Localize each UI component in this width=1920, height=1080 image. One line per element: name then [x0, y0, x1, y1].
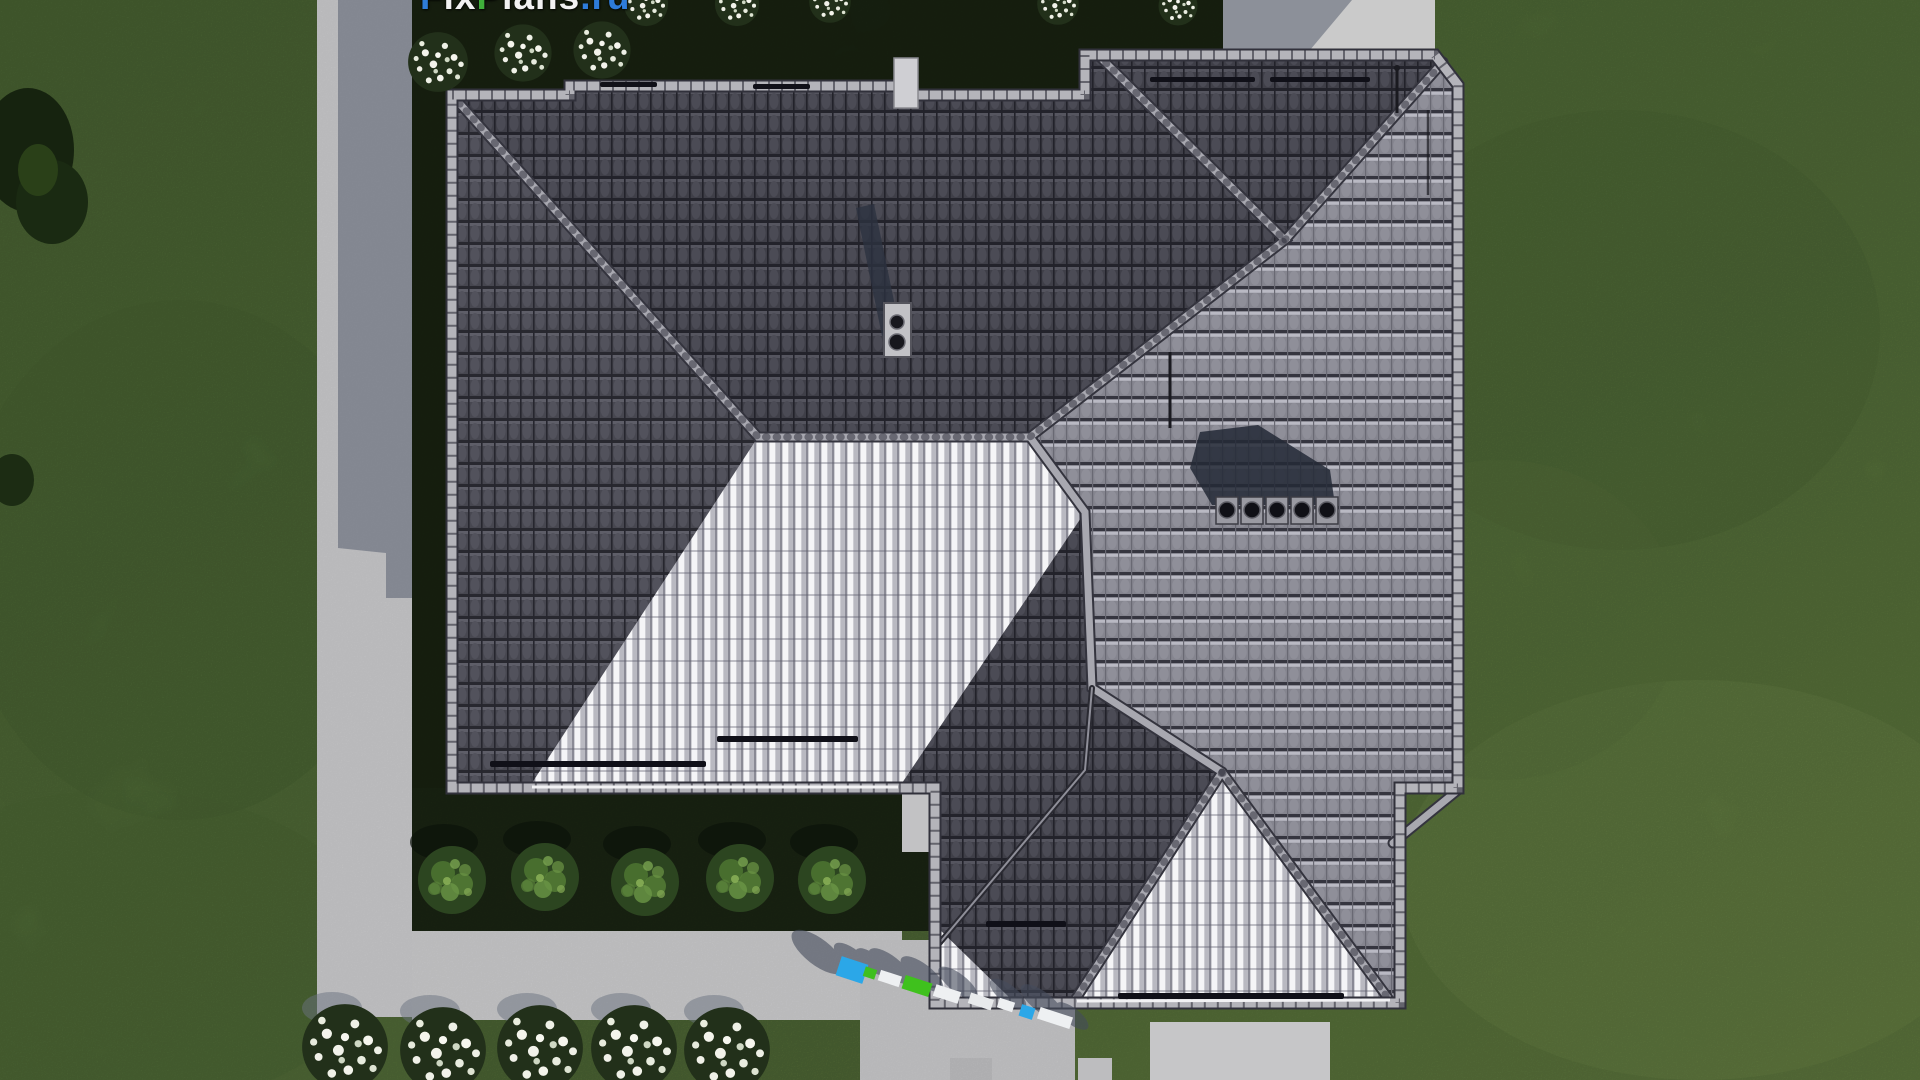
hedge-bush: [418, 846, 486, 914]
roof-vent: [1291, 497, 1313, 524]
roof-vent: [1216, 497, 1238, 524]
hedge-bush: [611, 848, 679, 916]
roof-vent: [1241, 497, 1263, 524]
flower-cluster: [494, 24, 551, 81]
roof-vent: [1316, 497, 1338, 524]
entrance-pad-right: [1150, 1022, 1330, 1080]
flower-cluster: [573, 21, 630, 78]
hedge-bush: [798, 846, 866, 914]
hedge-bush: [511, 843, 579, 911]
gutter-line-porch: [1077, 1000, 1390, 1001]
entrance-step-b: [1078, 1058, 1112, 1080]
roof-shadow-on-path: [338, 0, 412, 598]
vent-stack: [894, 58, 918, 108]
roof-vent: [1266, 497, 1288, 524]
aerial-house-render: FixPlans.ru: [0, 0, 1920, 1080]
hedge-bush: [706, 844, 774, 912]
chimney-flue-1: [890, 315, 904, 329]
roof-vents: [1216, 497, 1338, 524]
render-canvas: [0, 0, 1920, 1080]
flower-cluster: [408, 32, 468, 92]
chimney-flue-2: [889, 334, 905, 350]
